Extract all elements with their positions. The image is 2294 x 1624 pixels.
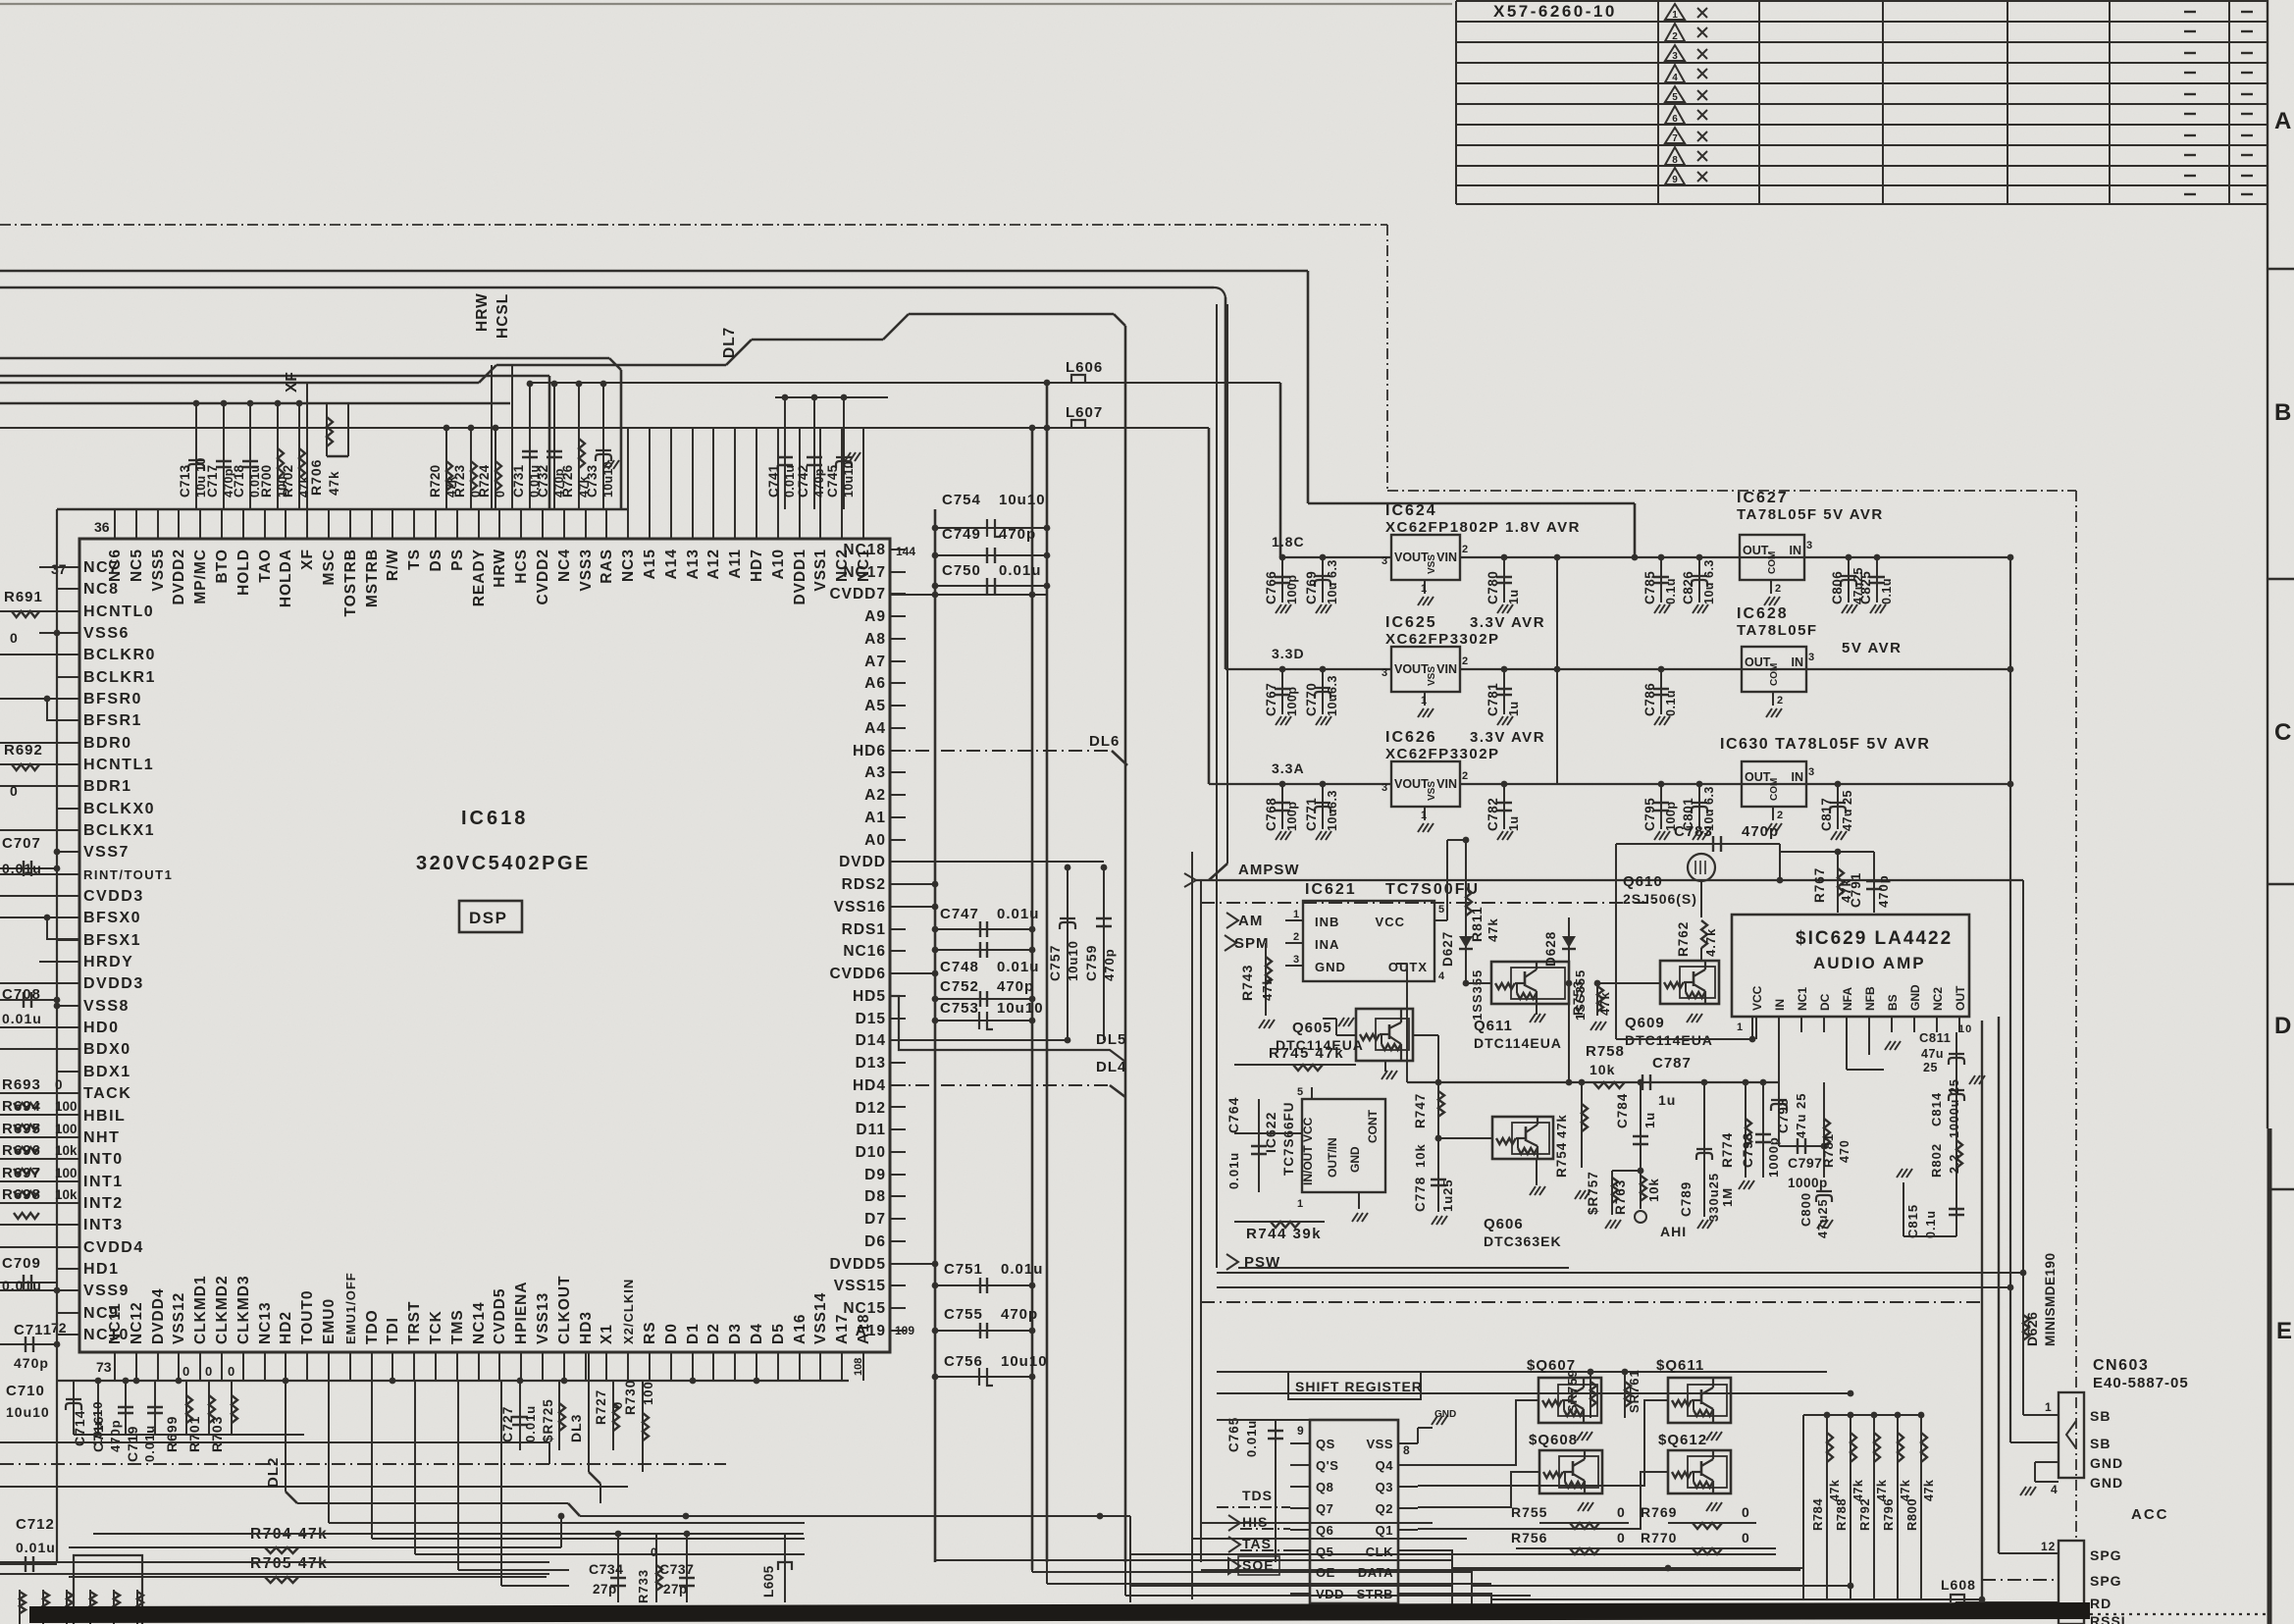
svg-text:0: 0 <box>494 491 507 498</box>
svg-text:VSS15: VSS15 <box>834 1278 886 1294</box>
svg-text:L606: L606 <box>1066 359 1103 376</box>
svg-text:BTO: BTO <box>214 549 231 583</box>
svg-text:0.01u: 0.01u <box>783 465 797 498</box>
svg-text:A6: A6 <box>864 675 886 692</box>
svg-text:R697: R697 <box>2 1165 41 1181</box>
svg-text:NFA: NFA <box>1841 987 1854 1011</box>
svg-text:L608: L608 <box>1941 1577 1976 1593</box>
svg-text:BCLKR0: BCLKR0 <box>83 647 156 663</box>
svg-text:10k: 10k <box>1590 1062 1615 1077</box>
svg-text:R770: R770 <box>1641 1530 1677 1545</box>
svg-text:10u10: 10u10 <box>6 1404 50 1420</box>
svg-text:D13: D13 <box>856 1055 886 1072</box>
svg-text:VSS6: VSS6 <box>83 625 130 642</box>
svg-text:C782: C782 <box>1486 798 1500 831</box>
svg-text:D628: D628 <box>1543 931 1558 967</box>
svg-text:R754: R754 <box>1554 1142 1569 1178</box>
svg-text:NC1: NC1 <box>1796 987 1809 1011</box>
svg-text:0: 0 <box>10 630 19 646</box>
svg-text:NC13: NC13 <box>257 1301 274 1344</box>
svg-text:IN: IN <box>1792 770 1804 784</box>
svg-text:2: 2 <box>1462 770 1469 782</box>
svg-text:IC630 TA78L05F 5V AVR: IC630 TA78L05F 5V AVR <box>1720 736 1930 753</box>
svg-text:IN/OUT VCC: IN/OUT VCC <box>1301 1117 1315 1185</box>
svg-text:R720: R720 <box>428 465 443 498</box>
svg-text:R706: R706 <box>308 459 324 496</box>
svg-text:R733: R733 <box>636 1569 651 1603</box>
svg-text:VSS9: VSS9 <box>83 1283 130 1299</box>
svg-text:RD: RD <box>2090 1596 2112 1611</box>
svg-text:AUDIO AMP: AUDIO AMP <box>1813 954 1926 972</box>
svg-text:D627: D627 <box>1440 931 1455 967</box>
svg-text:470p: 470p <box>1102 948 1117 981</box>
svg-text:NC7: NC7 <box>83 559 120 576</box>
svg-text:10k: 10k <box>55 1143 78 1158</box>
svg-text:XF: XF <box>299 549 316 570</box>
svg-text:C753: C753 <box>940 1000 979 1017</box>
svg-text:47k: 47k <box>1922 1480 1936 1501</box>
svg-text:47k: 47k <box>327 470 341 496</box>
svg-text:470p: 470p <box>1876 874 1891 908</box>
svg-text:DATA: DATA <box>1358 1565 1393 1580</box>
svg-text:Q'S: Q'S <box>1316 1458 1338 1473</box>
svg-text:C734: C734 <box>589 1561 623 1577</box>
svg-text:4: 4 <box>1672 73 1678 83</box>
svg-text:Q6: Q6 <box>1316 1523 1333 1538</box>
svg-text:1u: 1u <box>1507 701 1521 716</box>
svg-text:0: 0 <box>1742 1504 1750 1520</box>
svg-text:330u25: 330u25 <box>1706 1173 1721 1222</box>
svg-text:RDS1: RDS1 <box>842 921 886 938</box>
svg-text:0: 0 <box>651 1545 658 1559</box>
svg-text:VSS16: VSS16 <box>834 899 886 916</box>
svg-text:IC628: IC628 <box>1737 605 1789 622</box>
svg-text:BDX1: BDX1 <box>83 1064 131 1080</box>
svg-text:C718: C718 <box>232 464 246 498</box>
svg-text:C751: C751 <box>944 1261 983 1278</box>
svg-text:NC5: NC5 <box>129 549 145 582</box>
svg-text:D0: D0 <box>663 1323 680 1344</box>
svg-text:R758: R758 <box>1586 1043 1625 1060</box>
svg-text:TA78L05F 5V AVR: TA78L05F 5V AVR <box>1737 506 1884 523</box>
svg-text:D: D <box>2274 1013 2291 1039</box>
svg-text:QS: QS <box>1316 1437 1335 1451</box>
svg-text:470p: 470p <box>812 468 826 498</box>
svg-text:4: 4 <box>1438 970 1445 982</box>
svg-text:DVDD4: DVDD4 <box>150 1287 167 1344</box>
svg-text:CLKOUT: CLKOUT <box>556 1275 573 1344</box>
svg-text:0: 0 <box>10 783 19 799</box>
svg-text:BFSR1: BFSR1 <box>83 712 142 729</box>
svg-text:C815: C815 <box>1905 1204 1920 1238</box>
svg-text:NC8: NC8 <box>83 581 120 598</box>
svg-text:0.01u: 0.01u <box>523 1405 538 1442</box>
svg-text:0.1u: 0.1u <box>1664 578 1678 604</box>
svg-text:C712: C712 <box>16 1516 55 1533</box>
svg-text:INA: INA <box>1315 937 1339 952</box>
svg-text:D11: D11 <box>856 1122 886 1138</box>
svg-text:10: 10 <box>1958 1023 1972 1035</box>
svg-text:A8: A8 <box>864 631 886 648</box>
svg-text:5: 5 <box>1438 904 1445 916</box>
svg-text:IN: IN <box>1792 655 1804 669</box>
svg-text:OUT: OUT <box>1745 655 1771 669</box>
svg-text:L605: L605 <box>761 1565 776 1598</box>
svg-text:D1: D1 <box>685 1323 702 1344</box>
svg-text:C747: C747 <box>940 906 979 922</box>
svg-text:RS: RS <box>642 1321 658 1344</box>
svg-text:0.1u: 0.1u <box>1664 690 1678 716</box>
svg-text:HCNTL0: HCNTL0 <box>83 603 154 620</box>
svg-text:VSS12: VSS12 <box>171 1292 187 1344</box>
svg-text:C825: C825 <box>1858 571 1873 604</box>
svg-text:BDR1: BDR1 <box>83 778 132 795</box>
svg-text:A2: A2 <box>864 787 886 804</box>
svg-text:SOE: SOE <box>1242 1557 1275 1573</box>
svg-text:10k: 10k <box>1413 1143 1428 1168</box>
svg-text:5V AVR: 5V AVR <box>1842 640 1903 656</box>
svg-text:R774: R774 <box>1720 1132 1735 1168</box>
svg-text:C737: C737 <box>659 1561 694 1577</box>
svg-text:1: 1 <box>1293 909 1300 920</box>
svg-text:R767: R767 <box>1812 867 1827 903</box>
svg-text:DVDD3: DVDD3 <box>83 975 144 992</box>
svg-text:CN603: CN603 <box>2093 1357 2149 1374</box>
svg-text:470p: 470p <box>14 1355 49 1371</box>
svg-text:12: 12 <box>2041 1540 2056 1553</box>
svg-text:DTC363EK: DTC363EK <box>1484 1233 1562 1249</box>
svg-text:HRW: HRW <box>474 292 491 332</box>
svg-text:2: 2 <box>1293 931 1300 943</box>
svg-text:R769: R769 <box>1641 1504 1677 1520</box>
svg-text:5: 5 <box>1672 92 1678 103</box>
svg-text:R762: R762 <box>1676 921 1691 957</box>
svg-text:R692: R692 <box>4 742 43 759</box>
svg-text:A14: A14 <box>663 549 680 579</box>
svg-text:B: B <box>2274 399 2291 426</box>
svg-text:0.01u: 0.01u <box>999 562 1041 579</box>
svg-text:MP/MC: MP/MC <box>192 549 209 604</box>
svg-text:XF: XF <box>284 371 300 393</box>
svg-text:SB: SB <box>2090 1408 2111 1424</box>
svg-text:3: 3 <box>1382 782 1388 794</box>
svg-text:IC627: IC627 <box>1737 490 1789 506</box>
svg-text:A7: A7 <box>864 654 886 670</box>
svg-text:9: 9 <box>1297 1424 1305 1438</box>
svg-text:GND: GND <box>1315 960 1346 974</box>
svg-text:E40-5887-05: E40-5887-05 <box>2093 1375 2189 1391</box>
svg-text:C759: C759 <box>1083 945 1099 981</box>
svg-text:CLKMD3: CLKMD3 <box>235 1275 252 1344</box>
svg-text:D626: D626 <box>2024 1312 2040 1346</box>
svg-text:C768: C768 <box>1264 798 1278 831</box>
svg-text:XC62FP1802P 1.8V AVR: XC62FP1802P 1.8V AVR <box>1385 519 1581 536</box>
svg-text:EMU0: EMU0 <box>321 1298 338 1344</box>
svg-text:10u 6.3: 10u 6.3 <box>1702 559 1716 604</box>
svg-text:DVDD2: DVDD2 <box>171 549 187 605</box>
svg-text:C764: C764 <box>1225 1097 1241 1133</box>
svg-text:A3: A3 <box>864 764 886 781</box>
svg-text:470p: 470p <box>1742 823 1779 840</box>
svg-text:D2: D2 <box>705 1323 722 1344</box>
svg-text:100: 100 <box>55 1166 78 1180</box>
svg-text:0: 0 <box>228 1364 235 1379</box>
svg-text:37: 37 <box>51 561 67 577</box>
svg-text:R696: R696 <box>2 1142 41 1159</box>
svg-text:A12: A12 <box>705 549 722 579</box>
svg-text:BCLKR1: BCLKR1 <box>83 669 156 686</box>
svg-text:C754: C754 <box>942 492 981 508</box>
svg-text:A16: A16 <box>792 1314 808 1344</box>
svg-text:INT0: INT0 <box>83 1151 124 1168</box>
svg-text:R781: R781 <box>1821 1133 1836 1168</box>
svg-text:NFB: NFB <box>1863 986 1877 1011</box>
svg-text:6: 6 <box>1672 114 1678 125</box>
svg-text:27p: 27p <box>593 1582 617 1597</box>
svg-text:A0: A0 <box>864 832 886 849</box>
svg-text:R/W: R/W <box>385 549 401 581</box>
svg-text:TA78L05F: TA78L05F <box>1737 622 1818 639</box>
svg-text:A9: A9 <box>864 608 886 625</box>
svg-text:VIN: VIN <box>1436 777 1457 791</box>
svg-text:HIS: HIS <box>1242 1514 1268 1530</box>
svg-text:C785: C785 <box>1642 571 1657 604</box>
svg-text:$Q611: $Q611 <box>1656 1357 1704 1374</box>
svg-text:XC62FP3302P: XC62FP3302P <box>1385 631 1500 648</box>
svg-text:VSS13: VSS13 <box>535 1292 551 1344</box>
svg-text:TOUT0: TOUT0 <box>299 1289 316 1344</box>
svg-text:R802: R802 <box>1929 1143 1944 1178</box>
svg-text:47k: 47k <box>1851 1480 1865 1501</box>
svg-text:D10: D10 <box>856 1144 886 1161</box>
svg-text:C784: C784 <box>1615 1093 1630 1128</box>
svg-text:47k: 47k <box>1486 917 1500 942</box>
svg-text:10u10: 10u10 <box>997 1000 1044 1017</box>
svg-text:C780: C780 <box>1486 571 1500 604</box>
svg-text:C710: C710 <box>6 1383 45 1399</box>
svg-text:NC16: NC16 <box>843 943 886 960</box>
svg-text:BDX0: BDX0 <box>83 1041 131 1058</box>
svg-text:47u: 47u <box>1921 1047 1944 1061</box>
svg-text:10u10: 10u10 <box>601 461 615 498</box>
svg-text:R727: R727 <box>594 1389 608 1425</box>
svg-text:R691: R691 <box>4 589 43 605</box>
svg-text:COM: COM <box>1769 663 1780 686</box>
svg-text:$Q608: $Q608 <box>1529 1432 1578 1448</box>
svg-text:X57-6260-10: X57-6260-10 <box>1493 2 1617 21</box>
svg-text:X1: X1 <box>599 1324 615 1344</box>
svg-text:R788: R788 <box>1834 1498 1849 1531</box>
svg-text:D4: D4 <box>749 1323 765 1344</box>
svg-text:HBIL: HBIL <box>83 1108 126 1125</box>
svg-text:C711: C711 <box>14 1322 52 1338</box>
svg-text:VSS5: VSS5 <box>150 549 167 592</box>
svg-text:INT2: INT2 <box>83 1195 124 1212</box>
svg-text:BCLKX0: BCLKX0 <box>83 801 155 817</box>
svg-text:1000u 25: 1000u 25 <box>1948 1078 1961 1138</box>
svg-text:D7: D7 <box>864 1211 886 1228</box>
svg-text:1: 1 <box>1737 1022 1744 1033</box>
svg-text:IC625: IC625 <box>1385 614 1437 631</box>
svg-text:$IC629 LA4422: $IC629 LA4422 <box>1796 928 1953 949</box>
svg-text:3.3V AVR: 3.3V AVR <box>1470 729 1545 746</box>
svg-text:R745 47k: R745 47k <box>1269 1045 1344 1062</box>
svg-text:VSS: VSS <box>1427 781 1437 801</box>
svg-text:3: 3 <box>1382 667 1388 679</box>
svg-text:144: 144 <box>896 545 915 558</box>
svg-text:HOLD: HOLD <box>235 549 252 596</box>
svg-text:C717: C717 <box>205 465 220 498</box>
svg-text:COM: COM <box>1767 551 1778 574</box>
svg-text:Q2: Q2 <box>1376 1501 1393 1516</box>
svg-text:VSS: VSS <box>1366 1437 1393 1451</box>
svg-text:3: 3 <box>1808 652 1815 663</box>
svg-text:RINT/TOUT1: RINT/TOUT1 <box>83 867 173 882</box>
svg-text:SPG: SPG <box>2090 1547 2122 1563</box>
svg-text:1u: 1u <box>1507 815 1521 831</box>
svg-text:C786: C786 <box>1642 683 1657 716</box>
svg-text:R695: R695 <box>2 1121 41 1137</box>
svg-text:2: 2 <box>1777 810 1784 821</box>
svg-text:1: 1 <box>1297 1198 1304 1210</box>
svg-text:0.01u: 0.01u <box>16 1540 56 1555</box>
svg-text:VCC: VCC <box>1750 985 1764 1011</box>
svg-text:R753: R753 <box>1571 980 1586 1016</box>
svg-text:0.01u: 0.01u <box>997 959 1039 975</box>
svg-text:0: 0 <box>205 1364 213 1379</box>
svg-text:C766: C766 <box>1264 571 1278 604</box>
svg-text:SHIFT REGISTER: SHIFT REGISTER <box>1295 1379 1423 1394</box>
svg-text:VOUT: VOUT <box>1394 662 1429 676</box>
svg-text:VSS1: VSS1 <box>812 549 829 592</box>
svg-text:D12: D12 <box>856 1100 886 1117</box>
svg-text:0.1u: 0.1u <box>1880 578 1894 604</box>
svg-text:10u10: 10u10 <box>1066 940 1080 981</box>
svg-text:470p: 470p <box>108 1419 123 1452</box>
svg-text:47k: 47k <box>1260 976 1275 1001</box>
svg-text:C756: C756 <box>944 1353 983 1370</box>
svg-text:TAO: TAO <box>257 549 274 583</box>
svg-text:470p: 470p <box>999 526 1036 543</box>
svg-text:D5: D5 <box>770 1323 787 1344</box>
svg-text:DTC114EUA: DTC114EUA <box>1474 1035 1562 1051</box>
svg-text:A10: A10 <box>770 549 787 579</box>
svg-text:OUT: OUT <box>1745 770 1771 784</box>
svg-text:CVDD3: CVDD3 <box>83 888 144 905</box>
svg-text:1: 1 <box>1421 810 1428 821</box>
svg-text:R747: R747 <box>1413 1093 1428 1128</box>
svg-text:VSS8: VSS8 <box>83 998 130 1015</box>
svg-text:VIN: VIN <box>1436 662 1457 676</box>
svg-text:C757: C757 <box>1047 945 1063 981</box>
svg-text:CLKMD1: CLKMD1 <box>192 1275 209 1344</box>
svg-text:DL6: DL6 <box>1089 733 1120 750</box>
svg-text:R698: R698 <box>2 1186 41 1203</box>
svg-text:BFSR0: BFSR0 <box>83 691 142 707</box>
svg-text:DL7: DL7 <box>721 327 738 358</box>
svg-text:HD6: HD6 <box>853 743 886 760</box>
svg-text:C708: C708 <box>2 986 41 1003</box>
svg-text:1SS355: 1SS355 <box>1470 969 1485 1021</box>
svg-text:A15: A15 <box>642 549 658 579</box>
svg-text:1M: 1M <box>1720 1187 1735 1207</box>
svg-text:GND: GND <box>2090 1475 2123 1491</box>
svg-text:RSSI: RSSI <box>2090 1613 2126 1624</box>
svg-text:C811: C811 <box>1919 1030 1951 1045</box>
svg-text:AMPSW: AMPSW <box>1238 862 1300 878</box>
svg-text:L607: L607 <box>1066 404 1103 421</box>
svg-text:0.01u: 0.01u <box>2 1011 42 1026</box>
svg-text:IN: IN <box>1790 544 1802 557</box>
svg-text:C731: C731 <box>511 464 526 498</box>
svg-text:R726: R726 <box>560 464 575 498</box>
svg-text:SR761: SR761 <box>1627 1369 1642 1413</box>
svg-text:AHI: AHI <box>1660 1224 1687 1239</box>
svg-text:1u25: 1u25 <box>1440 1179 1455 1212</box>
svg-text:2SJ506(S): 2SJ506(S) <box>1623 891 1697 907</box>
svg-text:47k: 47k <box>1875 1480 1889 1501</box>
svg-text:EMU1/OFF: EMU1/OFF <box>343 1272 358 1344</box>
svg-text:R723: R723 <box>452 464 467 498</box>
svg-text:0: 0 <box>1617 1504 1626 1520</box>
svg-text:Q1: Q1 <box>1376 1523 1393 1538</box>
svg-text:D8: D8 <box>864 1188 886 1205</box>
svg-text:C769: C769 <box>1304 571 1319 604</box>
svg-text:VSS7: VSS7 <box>83 844 130 861</box>
svg-text:RAS: RAS <box>599 549 615 584</box>
svg-text:10u6.3: 10u6.3 <box>1326 790 1339 831</box>
svg-text:DVDD: DVDD <box>839 854 886 870</box>
svg-text:25: 25 <box>1923 1061 1938 1074</box>
svg-text:MSTRB: MSTRB <box>364 549 381 607</box>
svg-text:HD3: HD3 <box>578 1311 595 1344</box>
svg-text:0.1u: 0.1u <box>1924 1210 1938 1238</box>
svg-text:TRST: TRST <box>406 1301 423 1344</box>
svg-text:BDR0: BDR0 <box>83 735 132 752</box>
svg-text:CONT: CONT <box>1366 1109 1380 1143</box>
svg-text:HCNTL1: HCNTL1 <box>83 757 154 773</box>
svg-text:VSS14: VSS14 <box>812 1292 829 1344</box>
svg-text:1u: 1u <box>1658 1092 1676 1108</box>
svg-text:2: 2 <box>1777 695 1784 707</box>
svg-text:27p: 27p <box>663 1582 688 1597</box>
svg-text:VSS: VSS <box>1427 666 1437 686</box>
svg-text:C771: C771 <box>1304 798 1319 831</box>
svg-text:Q606: Q606 <box>1484 1216 1524 1232</box>
svg-text:DVDD1: DVDD1 <box>792 549 808 605</box>
svg-text:MSC: MSC <box>321 549 338 585</box>
svg-text:47u25: 47u25 <box>1816 1199 1830 1238</box>
svg-text:C713: C713 <box>178 464 192 498</box>
svg-text:TS: TS <box>406 549 423 570</box>
svg-text:TMS: TMS <box>449 1309 466 1344</box>
svg-text:$R757: $R757 <box>1586 1171 1600 1215</box>
svg-text:C: C <box>2274 719 2291 746</box>
svg-text:9: 9 <box>1672 175 1678 185</box>
svg-text:100: 100 <box>55 1099 78 1114</box>
svg-text:100p: 100p <box>1285 687 1299 717</box>
svg-text:10u 6.3: 10u 6.3 <box>1326 559 1339 604</box>
svg-text:NC11: NC11 <box>107 1302 124 1344</box>
svg-text:C781: C781 <box>1486 683 1500 716</box>
svg-text:C750: C750 <box>942 562 981 579</box>
svg-text:10k: 10k <box>55 1187 78 1202</box>
svg-text:5: 5 <box>1297 1086 1304 1098</box>
svg-text:CVDD6: CVDD6 <box>829 966 886 982</box>
svg-text:VOUT: VOUT <box>1394 777 1429 791</box>
svg-text:DC: DC <box>1818 993 1832 1011</box>
svg-text:NC4: NC4 <box>556 549 573 582</box>
